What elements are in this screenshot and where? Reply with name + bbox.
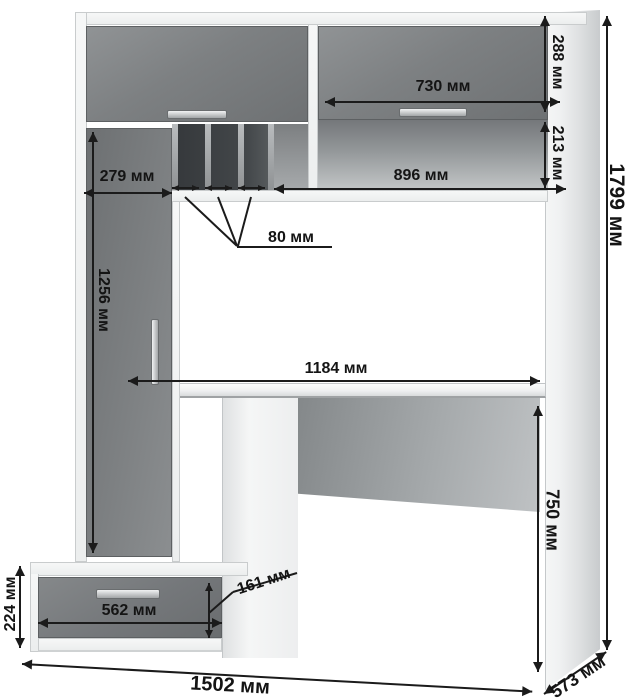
dim-label-562: 562 мм <box>102 602 157 620</box>
dim-label-1799: 1799 мм <box>604 163 627 247</box>
dim-label-730: 730 мм <box>416 78 471 96</box>
dim-arrow-750 <box>537 406 539 672</box>
dim-label-1256: 1256 мм <box>94 268 112 332</box>
dim-label-288: 288 мм <box>548 35 566 90</box>
dim-arrow-288 <box>544 16 546 112</box>
dim-label-1184: 1184 мм <box>305 360 368 378</box>
dim-arrow-730 <box>325 101 560 103</box>
dim-arrow-1184 <box>128 380 540 382</box>
dim-label-213: 213 мм <box>548 126 566 181</box>
dim-arrow-slot-3 <box>238 187 265 189</box>
dim-label-80: 80 мм <box>268 229 314 247</box>
dim-label-279: 279 мм <box>100 168 155 186</box>
leader-lines <box>0 0 627 700</box>
dim-label-1502: 1502 мм <box>190 672 271 699</box>
dim-arrow-279 <box>84 192 172 194</box>
dim-arrow-896 <box>274 188 566 190</box>
dim-label-224: 224 мм <box>2 577 20 632</box>
furniture-dimension-diagram: 288 мм 730 мм 213 мм 896 мм 279 мм 80 мм… <box>0 0 627 700</box>
dim-arrow-562 <box>38 622 222 624</box>
dim-arrow-213 <box>544 122 546 188</box>
dim-arrow-slot-2 <box>205 187 232 189</box>
dim-arrow-slot-1 <box>172 187 199 189</box>
dim-label-750: 750 мм <box>542 489 563 551</box>
dim-label-896: 896 мм <box>394 167 449 185</box>
dim-arrow-1799 <box>606 16 608 650</box>
dim-arrow-1256 <box>92 132 94 553</box>
dim-arrow-161 <box>208 583 210 638</box>
